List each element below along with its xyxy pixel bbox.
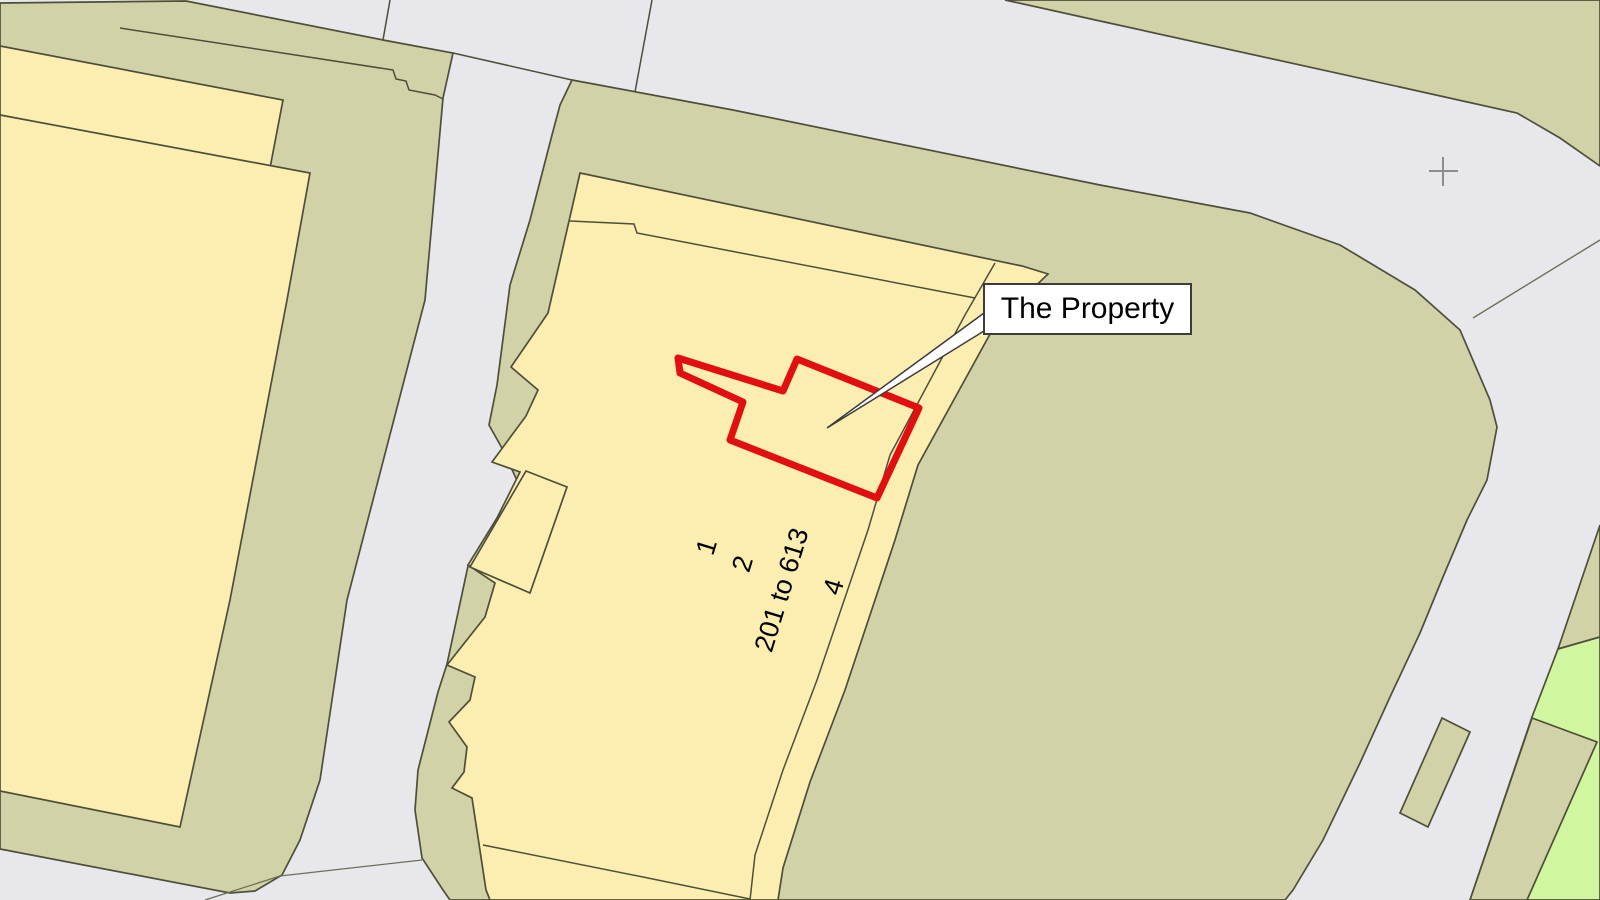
road-junction-line-2: [635, 0, 652, 92]
road-junction-line-1: [383, 0, 390, 40]
map-canvas: [0, 0, 1600, 900]
road-edge-line: [453, 53, 572, 80]
property-callout-text: The Property: [1001, 292, 1174, 326]
parcel-top-right: [1005, 0, 1600, 166]
property-callout-label: The Property: [983, 283, 1192, 335]
parcel-wedge-right: [1558, 525, 1600, 649]
traffic-island: [1400, 718, 1470, 827]
property-location-map: The Property 12201 to 6134: [0, 0, 1600, 900]
boundary-line-bottom-1: [280, 860, 422, 876]
road-junction-line-3: [1473, 240, 1600, 318]
